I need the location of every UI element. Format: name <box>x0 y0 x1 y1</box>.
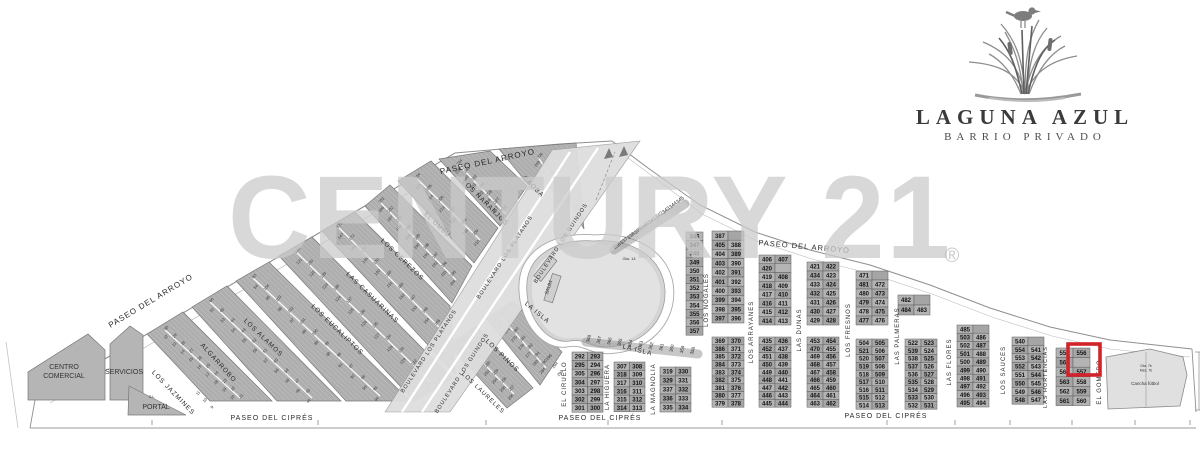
lot-number: 499 <box>960 368 971 374</box>
lot-number: 553 <box>1015 356 1026 362</box>
lot-number: 518 <box>859 372 870 378</box>
lot-number: 435 <box>762 339 773 345</box>
lot-number: 469 <box>810 355 821 361</box>
lot-number: 490 <box>976 368 987 374</box>
lot-number: 540 <box>1015 339 1026 345</box>
lot-number: 429 <box>810 319 821 325</box>
site-plan-canvas: 3012291328142715261625172418231922202166… <box>0 0 1200 449</box>
lot-number: 331 <box>678 379 689 385</box>
lot-number: 501 <box>960 352 971 358</box>
lot-number: 480 <box>859 292 870 298</box>
lot-number: 443 <box>778 394 789 400</box>
lot-number: 384 <box>715 363 726 369</box>
lot-number: 451 <box>762 355 773 361</box>
lot-number: 381 <box>715 386 726 392</box>
logo-title: LAGUNA AZUL <box>905 105 1145 130</box>
lot-number: 305 <box>575 372 586 378</box>
lot-number: 411 <box>778 301 788 307</box>
lot-number: 531 <box>924 404 935 410</box>
lot-number: 503 <box>960 336 971 342</box>
lot-number: 318 <box>617 373 628 379</box>
lot-number: 382 <box>715 378 726 384</box>
lot-number: 541 <box>1031 348 1042 354</box>
lot-number: 375 <box>731 378 742 384</box>
lot-number: 386 <box>715 347 726 353</box>
lot-number: 376 <box>731 386 742 392</box>
lot-number: 494 <box>976 401 987 407</box>
lot-number: 465 <box>810 386 821 392</box>
lot-number: 455 <box>826 347 837 353</box>
lot-number: 525 <box>924 357 935 363</box>
lot-number: 398 <box>715 307 726 313</box>
lot-number: 562 <box>1059 389 1070 395</box>
lot-number: 313 <box>632 406 643 412</box>
lot-number: 477 <box>859 319 870 325</box>
lot-number: 506 <box>875 349 886 355</box>
area-label: G.L. <box>149 395 156 399</box>
lot-number: 502 <box>960 344 971 350</box>
area-label: PORTAL <box>142 404 169 411</box>
lot-number: 315 <box>617 398 628 404</box>
lot-number: 535 <box>908 380 919 386</box>
lot-number: 479 <box>859 301 870 307</box>
lot-number: 473 <box>875 292 886 298</box>
lot-number: 304 <box>575 380 586 386</box>
lot-number: 395 <box>731 307 742 313</box>
lot-number: 438 <box>778 355 789 361</box>
lot-number: 410 <box>778 293 789 299</box>
lot-number: 330 <box>678 370 689 376</box>
lot-number: 437 <box>778 347 789 353</box>
street-label: PASEO DEL CIPRÉS <box>559 413 642 422</box>
lot-number: 356 <box>689 321 700 327</box>
lot-number: 355 <box>689 312 700 318</box>
lot-number: 394 <box>731 298 742 304</box>
lot-number: 412 <box>778 310 789 316</box>
lot-number: 509 <box>875 372 886 378</box>
lot-number: 385 <box>715 355 726 361</box>
lot-number: 544 <box>1031 373 1042 379</box>
lot-number: 396 <box>731 317 742 323</box>
lot-number: 457 <box>826 363 837 369</box>
lot-number: 449 <box>762 370 773 376</box>
lot-number: 295 <box>575 363 586 369</box>
street-label: LOS FRESNOS <box>846 303 852 357</box>
lot-number: 332 <box>678 388 689 394</box>
lot-number: 505 <box>875 341 886 347</box>
lot-number: 448 <box>762 378 773 384</box>
lot-number: 450 <box>762 363 773 369</box>
lot-number: 413 <box>778 319 789 325</box>
lot-number: 418 <box>762 284 773 290</box>
lot-cell <box>973 325 989 333</box>
lot-number: 428 <box>826 319 837 325</box>
lot-number: 352 <box>689 286 700 292</box>
lot-number: 559 <box>1076 389 1087 395</box>
lot-number: 292 <box>575 355 586 361</box>
lot-number: 511 <box>875 388 885 394</box>
lot-number: 496 <box>960 393 971 399</box>
lot-number: 357 <box>689 329 700 335</box>
lot-number: 482 <box>901 298 912 304</box>
bird-on-reeds-icon <box>905 2 1145 102</box>
lot-number: 552 <box>1015 365 1026 371</box>
lot-number: 551 <box>1015 373 1026 379</box>
lot-number: 512 <box>875 396 886 402</box>
lot-number: 369 <box>715 339 726 345</box>
lot-number: 560 <box>1076 399 1087 405</box>
lot-number: 393 <box>731 289 742 295</box>
lot-number: 456 <box>826 355 837 361</box>
lot-number: 377 <box>731 394 742 400</box>
lot-number: 497 <box>960 385 971 391</box>
lot-number: 533 <box>908 396 919 402</box>
street-label: LAS FLORES <box>947 338 953 385</box>
street-label: LA MAGNOLIA <box>651 363 657 414</box>
lot-number: 425 <box>826 292 837 298</box>
lot-number: 520 <box>859 357 870 363</box>
lot-number: 487 <box>976 344 987 350</box>
area-label: CENTRO <box>49 364 79 371</box>
lot-number: 329 <box>663 379 674 385</box>
lot-number: 409 <box>778 284 789 290</box>
lot-number: 524 <box>924 349 935 355</box>
logo: LAGUNA AZUL BARRIO PRIVADO <box>905 2 1145 142</box>
lot-number: 530 <box>924 396 935 402</box>
lot-number: 521 <box>859 349 870 355</box>
lot-number: 400 <box>715 289 726 295</box>
registered-mark: ® <box>945 245 960 267</box>
logo-subtitle: BARRIO PRIVADO <box>905 131 1145 143</box>
lot-number: 538 <box>908 357 919 363</box>
lot-number: 379 <box>715 402 726 408</box>
lot-number: 561 <box>1059 399 1070 405</box>
lot-number: 372 <box>731 355 742 361</box>
lot-number: 414 <box>762 319 773 325</box>
lot-number: 563 <box>1059 380 1070 386</box>
lot-number: 333 <box>678 397 689 403</box>
lot-number: 397 <box>715 317 726 323</box>
lot-number: 415 <box>762 310 773 316</box>
lot-number: 508 <box>875 365 886 371</box>
lot-number: 431 <box>810 301 821 307</box>
lot-number: 319 <box>663 370 674 376</box>
lot-number: 504 <box>859 341 870 347</box>
lot-number: 297 <box>590 380 601 386</box>
lot-cell <box>1028 337 1044 345</box>
street-label: LAS PALMERAS <box>895 307 901 364</box>
lot-number: 312 <box>632 398 643 404</box>
lot-number: 491 <box>976 377 987 383</box>
lot-number: 495 <box>960 401 971 407</box>
lot-number: 486 <box>976 336 987 342</box>
lot-number: 483 <box>917 308 928 314</box>
area-label: Mza. 7b <box>1140 369 1153 373</box>
lot-number: 485 <box>960 327 971 333</box>
lot-number: 442 <box>778 386 789 392</box>
lot-number: 336 <box>663 397 674 403</box>
lot-number: 294 <box>590 363 601 369</box>
lot-number: 444 <box>778 402 789 408</box>
lot-number: 353 <box>689 295 700 301</box>
street-label: PASEO DEL CIPRÉS <box>845 411 928 420</box>
lot-number: 507 <box>875 357 886 363</box>
lot-number: 378 <box>731 402 742 408</box>
lot-number: 498 <box>960 377 971 383</box>
lot-number: 380 <box>715 394 726 400</box>
lot-number: 500 <box>960 360 971 366</box>
lot-number: 310 <box>632 381 643 387</box>
lot-number: 549 <box>1015 390 1026 396</box>
lot-number: 440 <box>778 370 789 376</box>
lot-number: 373 <box>731 363 742 369</box>
street-label: EL CIRUELO <box>562 361 568 406</box>
street-label: LA HIGUERA <box>605 364 611 410</box>
area-label: Gta. 7b <box>1140 364 1152 368</box>
lot-number: 542 <box>1031 356 1042 362</box>
lot-number: 527 <box>924 372 935 378</box>
lot-number: 309 <box>632 373 643 379</box>
street-label: LOS SAUCES <box>1001 346 1007 394</box>
lot-number: 489 <box>976 360 987 366</box>
lot-number: 466 <box>810 378 821 384</box>
lot-number: 554 <box>1015 348 1026 354</box>
lot-number: 453 <box>810 339 821 345</box>
lot-number: 532 <box>908 404 919 410</box>
area-label: SERVICIOS <box>105 369 143 376</box>
lot-number: 488 <box>976 352 987 358</box>
lot-number: 492 <box>976 385 987 391</box>
lot-number: 335 <box>663 406 674 412</box>
lot-number: 467 <box>810 370 821 376</box>
lot-number: 383 <box>715 370 726 376</box>
lot-number: 371 <box>731 347 742 353</box>
area-label: Cancha fútbol <box>1131 381 1159 386</box>
lot-number: 298 <box>590 389 601 395</box>
lot-number: 399 <box>715 298 726 304</box>
lot-number: 316 <box>617 389 628 395</box>
lot-number: 515 <box>859 396 870 402</box>
lot-number: 447 <box>762 386 773 392</box>
lot-number: 314 <box>617 406 628 412</box>
lot-number: 370 <box>731 339 742 345</box>
lot-number: 307 <box>617 364 628 370</box>
lot-number: 546 <box>1031 390 1042 396</box>
lot-number: 470 <box>810 347 821 353</box>
lot-number: 300 <box>590 406 601 412</box>
lot-number: 513 <box>875 404 886 410</box>
lot-number: 468 <box>810 363 821 369</box>
cancha-futbol-area <box>1106 349 1187 409</box>
lot-number: 475 <box>875 310 886 316</box>
lot-number: 439 <box>778 363 789 369</box>
lot-number: 550 <box>1015 381 1026 387</box>
lot-number: 354 <box>689 303 700 309</box>
lot-number: 317 <box>617 381 628 387</box>
lot-number: 493 <box>976 393 987 399</box>
lot-number: 458 <box>826 370 837 376</box>
lot-number: 536 <box>908 372 919 378</box>
street-label: LOS ARRAYANES <box>749 301 755 363</box>
lot-number: 556 <box>1076 351 1087 357</box>
lot-number: 545 <box>1031 381 1042 387</box>
lot-number: 436 <box>778 339 789 345</box>
lot-number: 446 <box>762 394 773 400</box>
lot-number: 476 <box>875 319 886 325</box>
street-label: LAS HORTENCIAS <box>1043 346 1049 408</box>
lot-number: 374 <box>731 370 742 376</box>
lot-number: 522 <box>908 341 919 347</box>
lot-number: 452 <box>762 347 773 353</box>
lot-number: 417 <box>762 293 773 299</box>
lot-number: 462 <box>826 402 837 408</box>
lot-number: 537 <box>908 365 919 371</box>
lot-number: 459 <box>826 378 837 384</box>
lot-number: 301 <box>575 406 586 412</box>
lot-number: 460 <box>826 386 837 392</box>
lot-number: 293 <box>590 355 601 361</box>
lot-cell <box>1073 358 1090 368</box>
lot-number: 539 <box>908 349 919 355</box>
lot-number: 334 <box>678 406 689 412</box>
street-label: PASEO DEL CIPRÉS <box>231 413 314 422</box>
lot-number: 510 <box>875 380 886 386</box>
lot-number: 426 <box>826 301 837 307</box>
lot-number: 516 <box>859 388 870 394</box>
lot-number: 9 <box>209 404 215 410</box>
lot-number: 474 <box>875 301 886 307</box>
lot-number: 464 <box>810 394 821 400</box>
servicios-area <box>110 326 143 400</box>
lot-number: 526 <box>924 365 935 371</box>
lot-number: 534 <box>908 388 919 394</box>
lot-number: 441 <box>778 378 789 384</box>
lot-number: 517 <box>859 380 870 386</box>
lot-number: 303 <box>575 389 586 395</box>
lot-number: 430 <box>810 310 821 316</box>
lot-number: 337 <box>663 388 674 394</box>
lot-number: 308 <box>632 364 643 370</box>
lot-number: 529 <box>924 388 935 394</box>
lot-number: 445 <box>762 402 773 408</box>
lot-number: 432 <box>810 292 821 298</box>
lot-number: 528 <box>924 380 935 386</box>
lot-number: 514 <box>859 404 870 410</box>
area-label: COMERCIAL <box>43 373 85 380</box>
lot-number: 454 <box>826 339 837 345</box>
lot-number: 463 <box>810 402 821 408</box>
lot-number: 548 <box>1015 398 1026 404</box>
lot-number: 543 <box>1031 365 1042 371</box>
lot-cell <box>914 295 930 305</box>
lot-number: 296 <box>590 372 601 378</box>
lot-number: 523 <box>924 341 935 347</box>
lot-number: 461 <box>826 394 837 400</box>
street-label: LAS DUNAS <box>797 308 803 351</box>
lot-number: 484 <box>901 308 912 314</box>
century21-watermark: CENTURY 21 <box>228 152 952 284</box>
lot-number: 299 <box>590 398 601 404</box>
lot-number: 478 <box>859 310 870 316</box>
lot-number: 416 <box>762 301 773 307</box>
lot-number: 558 <box>1076 380 1087 386</box>
lot-number: 311 <box>632 389 642 395</box>
lot-number: 547 <box>1031 398 1042 404</box>
lot-number: 427 <box>826 310 837 316</box>
lot-number: 302 <box>575 398 586 404</box>
lot-number: 519 <box>859 365 870 371</box>
